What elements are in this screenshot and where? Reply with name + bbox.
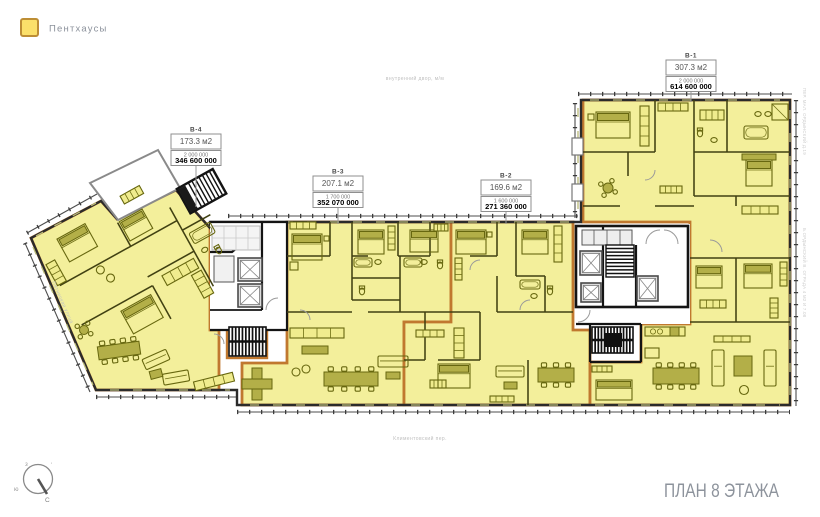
svg-text:з: з [25, 462, 28, 468]
svg-text:Пентхаусы: Пентхаусы [49, 24, 108, 35]
svg-text:В-3: В-3 [332, 169, 344, 176]
svg-text:169.6 м2: 169.6 м2 [490, 183, 523, 192]
svg-text:207.1 м2: 207.1 м2 [322, 179, 355, 188]
svg-text:В-4: В-4 [190, 127, 202, 134]
svg-text:ПЛАН 8 ЭТАЖА: ПЛАН 8 ЭТАЖА [664, 480, 779, 502]
svg-text:В-1: В-1 [685, 53, 697, 60]
svg-text:346 600 000: 346 600 000 [175, 156, 217, 165]
svg-text:271 360 000: 271 360 000 [485, 202, 527, 211]
svg-text:С: С [45, 497, 50, 504]
svg-text:внутренний двор, м/м: внутренний двор, м/м [386, 75, 445, 82]
svg-text:614 600 000: 614 600 000 [670, 82, 712, 91]
svg-text:173.3 м2: 173.3 м2 [180, 137, 213, 146]
svg-text:ю: ю [14, 487, 19, 493]
svg-text:В-2: В-2 [500, 173, 512, 180]
svg-text:ПЕР. МАЛ. ОРДЫНСКИЙ Д.19: ПЕР. МАЛ. ОРДЫНСКИЙ Д.19 [802, 88, 807, 155]
svg-text:307.3 м2: 307.3 м2 [675, 63, 708, 72]
svg-text:': ' [51, 463, 52, 469]
svg-text:Б.ОРДЫНСКИЙ В. ОГРАДА 4 М2 И 7: Б.ОРДЫНСКИЙ В. ОГРАДА 4 М2 И 7.08 [802, 228, 807, 318]
svg-text:Климентовский пер.: Климентовский пер. [393, 435, 447, 442]
svg-text:352 070 000: 352 070 000 [317, 198, 359, 207]
